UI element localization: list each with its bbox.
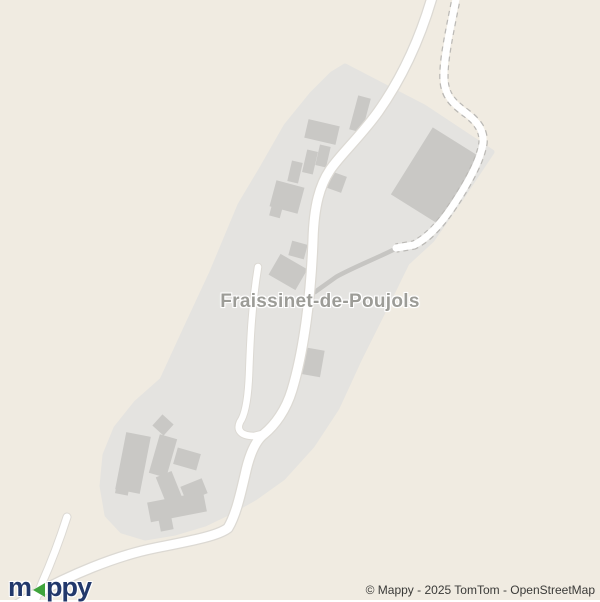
mappy-arrow-icon [33,583,45,597]
mappy-logo-ppy: ppy [46,574,91,601]
mappy-logo-m: m [8,574,31,601]
map-canvas[interactable]: Fraissinet-de-Poujols m ppy © Mappy - 20… [0,0,600,600]
map-attribution: © Mappy - 2025 TomTom - OpenStreetMap [366,583,595,597]
building [158,516,173,531]
mappy-logo[interactable]: m ppy [8,574,91,601]
place-label: Fraissinet-de-Poujols [220,291,420,313]
